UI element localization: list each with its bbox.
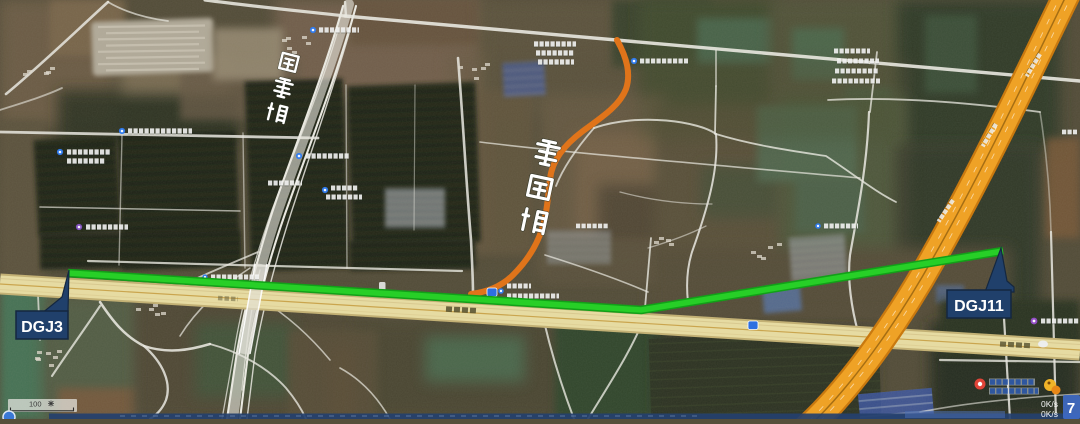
svg-text:0K/s: 0K/s xyxy=(1041,399,1058,409)
svg-text:100: 100 xyxy=(29,400,42,409)
svg-text:DGJ3: DGJ3 xyxy=(21,319,63,336)
svg-text:DGJ11: DGJ11 xyxy=(954,298,1004,315)
svg-text:7: 7 xyxy=(1067,400,1075,417)
svg-text:0K/s: 0K/s xyxy=(1041,409,1058,419)
